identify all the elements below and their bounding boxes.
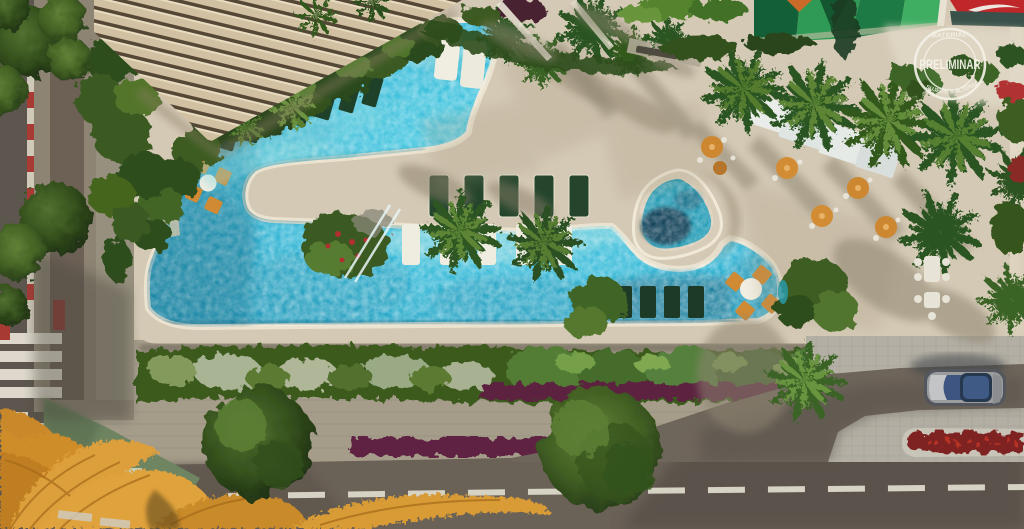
svg-text:PRELIMINAR: PRELIMINAR — [920, 57, 981, 72]
svg-text:MATERIAL: MATERIAL — [931, 31, 967, 39]
